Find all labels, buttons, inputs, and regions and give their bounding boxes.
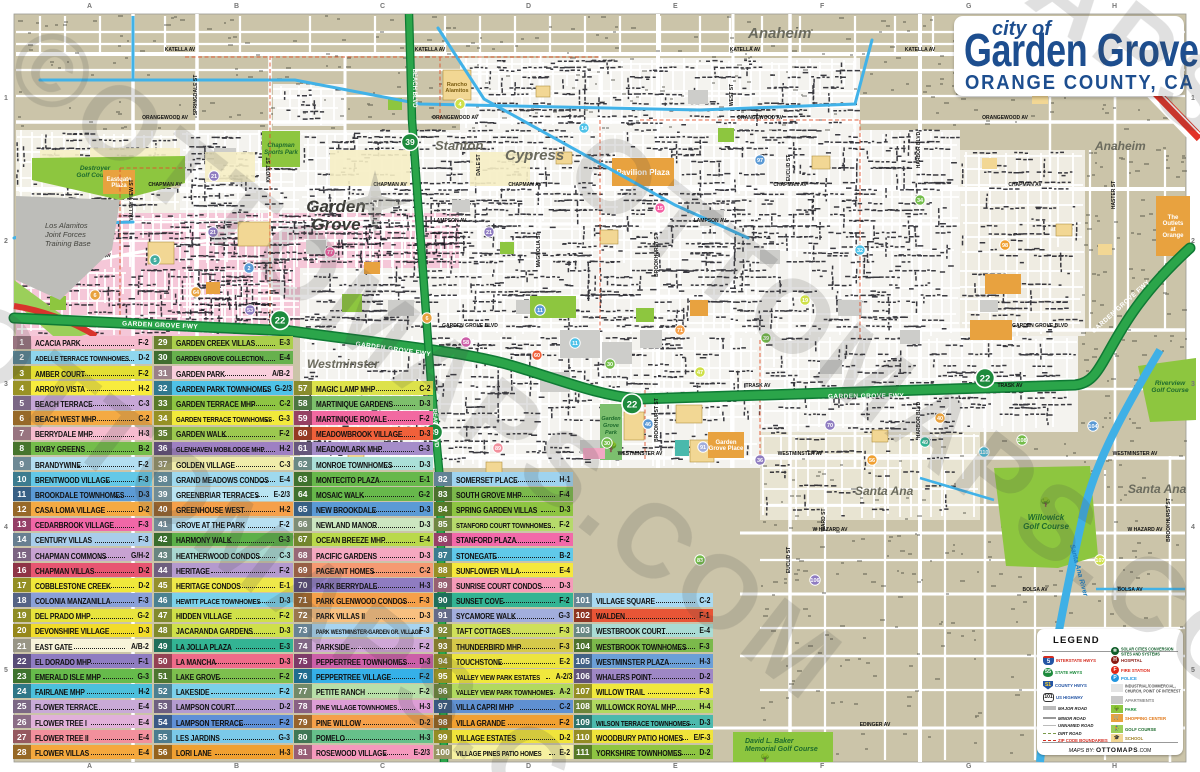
svg-text:GARDEN GROVE BLVD: GARDEN GROVE BLVD: [1012, 323, 1068, 329]
svg-text:Training Base: Training Base: [45, 239, 91, 248]
svg-text:11: 11: [537, 308, 543, 314]
svg-text:Golf Course: Golf Course: [1151, 387, 1189, 394]
svg-text:89: 89: [495, 446, 501, 452]
svg-text:Riverview: Riverview: [1155, 380, 1186, 387]
svg-text:W HAZARD AV: W HAZARD AV: [1128, 527, 1164, 533]
svg-text:98: 98: [1002, 243, 1008, 249]
svg-text:30: 30: [607, 362, 613, 368]
svg-text:Los Alamitos: Los Alamitos: [45, 221, 88, 230]
svg-text:WARD ST: WARD ST: [821, 508, 827, 531]
svg-text:BROOKHURST ST: BROOKHURST ST: [654, 233, 660, 277]
svg-text:107: 107: [1095, 558, 1104, 564]
svg-text:91: 91: [700, 445, 706, 451]
svg-text:21: 21: [210, 230, 216, 236]
svg-text:49: 49: [922, 440, 928, 446]
svg-text:EDINGER AV: EDINGER AV: [860, 722, 891, 728]
svg-text:HASTER ST: HASTER ST: [1111, 181, 1117, 209]
svg-text:DALE ST: DALE ST: [476, 154, 482, 175]
svg-text:Stanton: Stanton: [435, 138, 483, 153]
svg-text:BROOKHURST ST: BROOKHURST ST: [654, 398, 660, 442]
svg-text:ORANGEWOOD AV: ORANGEWOOD AV: [142, 115, 188, 121]
svg-text:WESTMINSTER AV: WESTMINSTER AV: [618, 451, 663, 457]
svg-text:60: 60: [534, 353, 540, 359]
svg-text:58: 58: [463, 340, 469, 346]
svg-text:Anaheim: Anaheim: [1094, 139, 1146, 153]
svg-text:TRASK AV: TRASK AV: [746, 383, 772, 389]
svg-text:CHAPMAN AV: CHAPMAN AV: [1008, 182, 1042, 188]
svg-text:15: 15: [657, 206, 663, 212]
svg-text:GARDEN GROVE FWY: GARDEN GROVE FWY: [828, 393, 904, 401]
svg-text:ORANGEWOOD AV: ORANGEWOOD AV: [432, 115, 478, 121]
svg-text:110: 110: [980, 450, 989, 456]
svg-text:Santa Ana: Santa Ana: [1128, 482, 1187, 496]
svg-text:39: 39: [405, 137, 415, 147]
svg-text:70: 70: [827, 423, 833, 429]
svg-text:BROOKHURST ST: BROOKHURST ST: [1166, 498, 1172, 542]
svg-text:KNOTT ST: KNOTT ST: [266, 158, 272, 183]
svg-text:Memorial Golf Course: Memorial Golf Course: [745, 746, 818, 753]
svg-text:22: 22: [275, 315, 286, 326]
svg-text:LAMPSON AV: LAMPSON AV: [434, 218, 467, 224]
svg-text:56: 56: [869, 458, 875, 464]
svg-text:77: 77: [327, 250, 333, 256]
svg-text:39: 39: [763, 336, 769, 342]
svg-text:Golf Course: Golf Course: [1023, 522, 1069, 531]
svg-text:6: 6: [93, 293, 96, 299]
svg-text:ORANGEWOOD AV: ORANGEWOOD AV: [982, 115, 1028, 121]
svg-text:MAGNOLIA ST: MAGNOLIA ST: [536, 233, 542, 268]
svg-text:BEACH BLVD: BEACH BLVD: [411, 69, 417, 109]
svg-text:106: 106: [810, 578, 819, 584]
svg-text:64: 64: [193, 290, 200, 296]
svg-text:Grove: Grove: [311, 215, 360, 234]
svg-text:BOLSA AV: BOLSA AV: [1022, 587, 1048, 593]
svg-text:WESTMINSTER AV: WESTMINSTER AV: [778, 451, 823, 457]
svg-text:CHAPMAN AV: CHAPMAN AV: [148, 182, 182, 188]
svg-text:Grove Place: Grove Place: [709, 446, 744, 452]
svg-text:EUCLID ST: EUCLID ST: [786, 547, 792, 573]
svg-text:2: 2: [247, 266, 250, 272]
svg-text:Chapman: Chapman: [267, 143, 295, 149]
svg-text:97: 97: [757, 158, 763, 164]
svg-text:11: 11: [572, 341, 578, 347]
svg-text:19: 19: [802, 298, 808, 304]
svg-text:KATELLA AV: KATELLA AV: [415, 47, 446, 53]
svg-text:14: 14: [581, 126, 588, 132]
svg-text:🌳: 🌳: [1040, 496, 1051, 507]
svg-text:Garden: Garden: [601, 416, 621, 422]
svg-text:22: 22: [980, 373, 991, 384]
svg-text:LAMPSON AV: LAMPSON AV: [694, 218, 727, 224]
svg-text:36: 36: [757, 458, 763, 464]
svg-text:EUCLID ST: EUCLID ST: [786, 155, 792, 181]
svg-text:22: 22: [627, 399, 638, 410]
svg-text:WESTMINSTER AV: WESTMINSTER AV: [1113, 451, 1158, 457]
svg-text:SPRINGDALE ST: SPRINGDALE ST: [193, 75, 199, 116]
svg-text:53: 53: [247, 308, 253, 314]
svg-text:Park: Park: [605, 430, 618, 436]
svg-text:Alamitos: Alamitos: [445, 88, 468, 94]
svg-text:104: 104: [1088, 424, 1098, 430]
svg-text:Grove: Grove: [603, 423, 619, 429]
svg-text:32: 32: [857, 248, 863, 254]
svg-text:TRASK AV: TRASK AV: [998, 383, 1024, 389]
svg-text:WEST ST: WEST ST: [729, 84, 735, 106]
svg-text:HARBOR BLVD: HARBOR BLVD: [916, 131, 922, 168]
svg-text:Orange: Orange: [1162, 233, 1184, 239]
svg-text:Cypress: Cypress: [505, 147, 564, 164]
svg-text:VALLEY VIEW ST: VALLEY VIEW ST: [129, 179, 135, 220]
svg-text:6: 6: [425, 316, 428, 322]
svg-text:40: 40: [937, 416, 943, 422]
svg-text:Joint Forces: Joint Forces: [44, 230, 86, 239]
svg-text:🌳: 🌳: [760, 752, 770, 762]
svg-text:21: 21: [211, 174, 217, 180]
svg-text:Sports Park: Sports Park: [264, 150, 298, 156]
svg-text:KATELLA AV: KATELLA AV: [905, 47, 936, 53]
svg-text:30: 30: [604, 441, 610, 447]
svg-text:CHAPMAN AV: CHAPMAN AV: [508, 182, 542, 188]
svg-text:46: 46: [645, 422, 651, 428]
svg-text:KATELLA AV: KATELLA AV: [165, 47, 196, 53]
svg-text:N: N: [371, 199, 378, 210]
svg-text:David L. Baker: David L. Baker: [745, 738, 795, 745]
svg-text:47: 47: [697, 370, 703, 376]
svg-text:KATELLA AV: KATELLA AV: [730, 47, 761, 53]
svg-text:Willowick: Willowick: [1028, 513, 1065, 522]
svg-text:5: 5: [153, 258, 156, 264]
svg-text:21: 21: [486, 230, 492, 236]
svg-text:34: 34: [917, 198, 924, 204]
svg-text:108: 108: [1017, 438, 1026, 444]
svg-text:Plaza: Plaza: [111, 183, 127, 189]
svg-text:W HAZARD AV: W HAZARD AV: [813, 527, 849, 533]
svg-text:BOLSA AV: BOLSA AV: [1117, 587, 1143, 593]
svg-text:Santa Ana: Santa Ana: [855, 484, 914, 498]
svg-text:CHAPMAN AV: CHAPMAN AV: [773, 182, 807, 188]
svg-text:Westminster: Westminster: [307, 357, 380, 371]
svg-text:HARBOR BLVD: HARBOR BLVD: [916, 401, 922, 438]
svg-text:71: 71: [677, 328, 683, 334]
svg-text:83: 83: [697, 558, 703, 564]
svg-text:Anaheim: Anaheim: [747, 25, 811, 42]
svg-text:ORANGEWOOD AV: ORANGEWOOD AV: [737, 115, 783, 121]
svg-text:GARDEN GROVE BLVD: GARDEN GROVE BLVD: [442, 323, 498, 329]
